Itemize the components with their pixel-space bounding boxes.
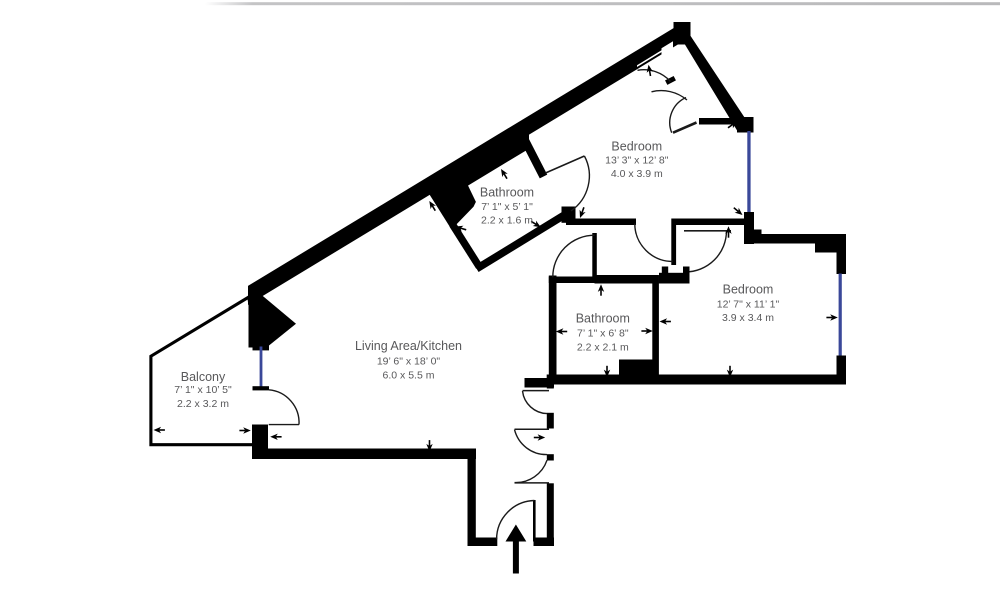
svg-text:7’ 1" x 10’ 5": 7’ 1" x 10’ 5" [174,384,232,396]
svg-text:Bathroom: Bathroom [576,311,630,325]
svg-text:13’ 3" x 12’ 8": 13’ 3" x 12’ 8" [605,155,669,167]
svg-text:12’ 7" x 11’ 1": 12’ 7" x 11’ 1" [717,299,780,311]
svg-text:Living Area/Kitchen: Living Area/Kitchen [355,339,462,353]
svg-text:19’ 6" x 18’ 0": 19’ 6" x 18’ 0" [377,355,441,367]
svg-text:2.2 x 1.6 m: 2.2 x 1.6 m [481,214,533,226]
svg-text:7’ 1" x 6’ 8": 7’ 1" x 6’ 8" [577,328,629,340]
svg-text:Balcony: Balcony [181,370,226,384]
svg-text:Bedroom: Bedroom [723,283,774,297]
svg-text:3.9 x 3.4 m: 3.9 x 3.4 m [722,312,774,324]
svg-text:4.0 x 3.9 m: 4.0 x 3.9 m [611,168,663,180]
svg-text:Bedroom: Bedroom [611,140,662,154]
svg-text:7’ 1" x 5’ 1": 7’ 1" x 5’ 1" [481,201,533,213]
svg-text:Bathroom: Bathroom [480,185,534,199]
svg-text:6.0 x 5.5 m: 6.0 x 5.5 m [383,370,435,382]
svg-text:2.2 x 3.2 m: 2.2 x 3.2 m [177,398,229,410]
svg-text:2.2 x 2.1 m: 2.2 x 2.1 m [577,342,629,354]
